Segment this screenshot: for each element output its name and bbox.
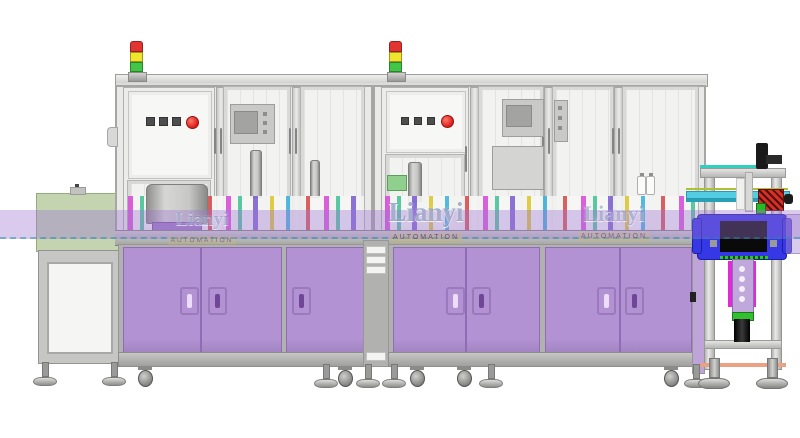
caster-wheel <box>662 366 680 387</box>
station-leveling-foot <box>698 358 730 389</box>
cabinet-door-handle[interactable] <box>208 287 227 315</box>
panel-button-2[interactable] <box>414 117 422 125</box>
module2-control-panel <box>386 91 466 153</box>
tower-red-light <box>389 41 402 52</box>
tower-green-light <box>130 62 143 72</box>
leveling-foot <box>102 362 126 386</box>
caster-wheel <box>336 366 354 387</box>
connector-stripe <box>366 246 386 254</box>
tower-yellow-light <box>130 52 143 62</box>
leveling-foot <box>479 364 503 388</box>
cabinet-door-handle[interactable] <box>597 287 616 315</box>
module2-hmi-screen <box>506 105 532 127</box>
panel-button-2[interactable] <box>159 117 168 126</box>
tunnel-sensor-dot <box>75 184 79 187</box>
caster-wheel <box>408 366 426 387</box>
tower-red-light <box>130 41 143 52</box>
clamp-knob[interactable] <box>784 194 793 204</box>
station-gray-pole <box>745 172 753 212</box>
cabinet-door-handle[interactable] <box>446 287 465 315</box>
slide-hole <box>739 276 745 282</box>
panel-button-3[interactable] <box>427 117 435 125</box>
signal-tower-1 <box>128 41 145 82</box>
panel-button-3[interactable] <box>172 117 181 126</box>
tunnel-top-sensor <box>70 187 86 195</box>
module1-controller-screen <box>234 111 258 134</box>
module2-door-handle-3[interactable] <box>612 128 620 154</box>
housing-bolt <box>710 240 717 247</box>
slide-hole <box>739 266 745 272</box>
leveling-foot <box>33 362 57 386</box>
emergency-stop-button[interactable] <box>441 115 454 128</box>
caster-wheel <box>455 366 473 387</box>
strip-button-dot <box>558 106 562 110</box>
connector-stripe <box>366 266 386 274</box>
connector-stripe <box>366 256 386 264</box>
tower-yellow-light <box>389 52 402 62</box>
infeed-cabinet-door <box>47 262 113 354</box>
caster-wheel <box>136 366 154 387</box>
module1-control-panel <box>128 91 212 179</box>
tower-base <box>387 72 406 82</box>
controller-button-dot <box>263 112 267 116</box>
cabinet-door-handle[interactable] <box>472 287 491 315</box>
station-top-beam <box>700 168 786 178</box>
cabinet-door-handle[interactable] <box>625 287 644 315</box>
module1-door-handle-1[interactable] <box>214 128 222 154</box>
station-white-slide <box>736 178 745 210</box>
panel-button-1[interactable] <box>401 117 409 125</box>
module1-vertical-cylinder-1 <box>250 150 262 198</box>
slide-hole <box>739 286 745 292</box>
module1-side-hinge <box>107 127 118 147</box>
station-motor-arm <box>766 155 782 164</box>
module2-gray-machine <box>492 146 544 190</box>
reagent-bottle-1 <box>637 176 646 195</box>
controller-button-dot <box>263 121 267 125</box>
tower-green-light <box>389 62 402 72</box>
signal-tower-2 <box>387 41 404 82</box>
panel-button-1[interactable] <box>146 117 155 126</box>
connector-stripe <box>366 352 386 361</box>
tower-base <box>128 72 147 82</box>
module2-plinth <box>388 352 695 367</box>
module1-vertical-cylinder-2 <box>310 160 320 198</box>
conveyor-highlight-band <box>0 210 800 239</box>
reagent-bottle-2 <box>646 176 655 195</box>
station-leveling-foot <box>756 358 788 389</box>
emergency-stop-button[interactable] <box>186 116 199 129</box>
side-panel-sensor <box>690 292 696 302</box>
slide-hole <box>739 296 745 302</box>
leveling-foot <box>314 364 338 388</box>
camera-lens-cylinder <box>734 319 750 342</box>
module1-door-handle-2[interactable] <box>289 128 297 154</box>
strip-button-dot <box>558 126 562 130</box>
housing-bolt <box>770 240 777 247</box>
strip-button-dot <box>558 116 562 120</box>
cabinet-door-handle[interactable] <box>180 287 199 315</box>
leveling-foot <box>382 364 406 388</box>
module2-green-unit <box>387 175 407 191</box>
cabinet-door-handle[interactable] <box>292 287 311 315</box>
station-deck-rail <box>700 165 756 168</box>
controller-button-dot <box>263 130 267 134</box>
leveling-foot <box>356 364 380 388</box>
machine-line-render: Lianyi AUTOMATION Lianyi AUTOMATION Lian… <box>0 0 800 438</box>
